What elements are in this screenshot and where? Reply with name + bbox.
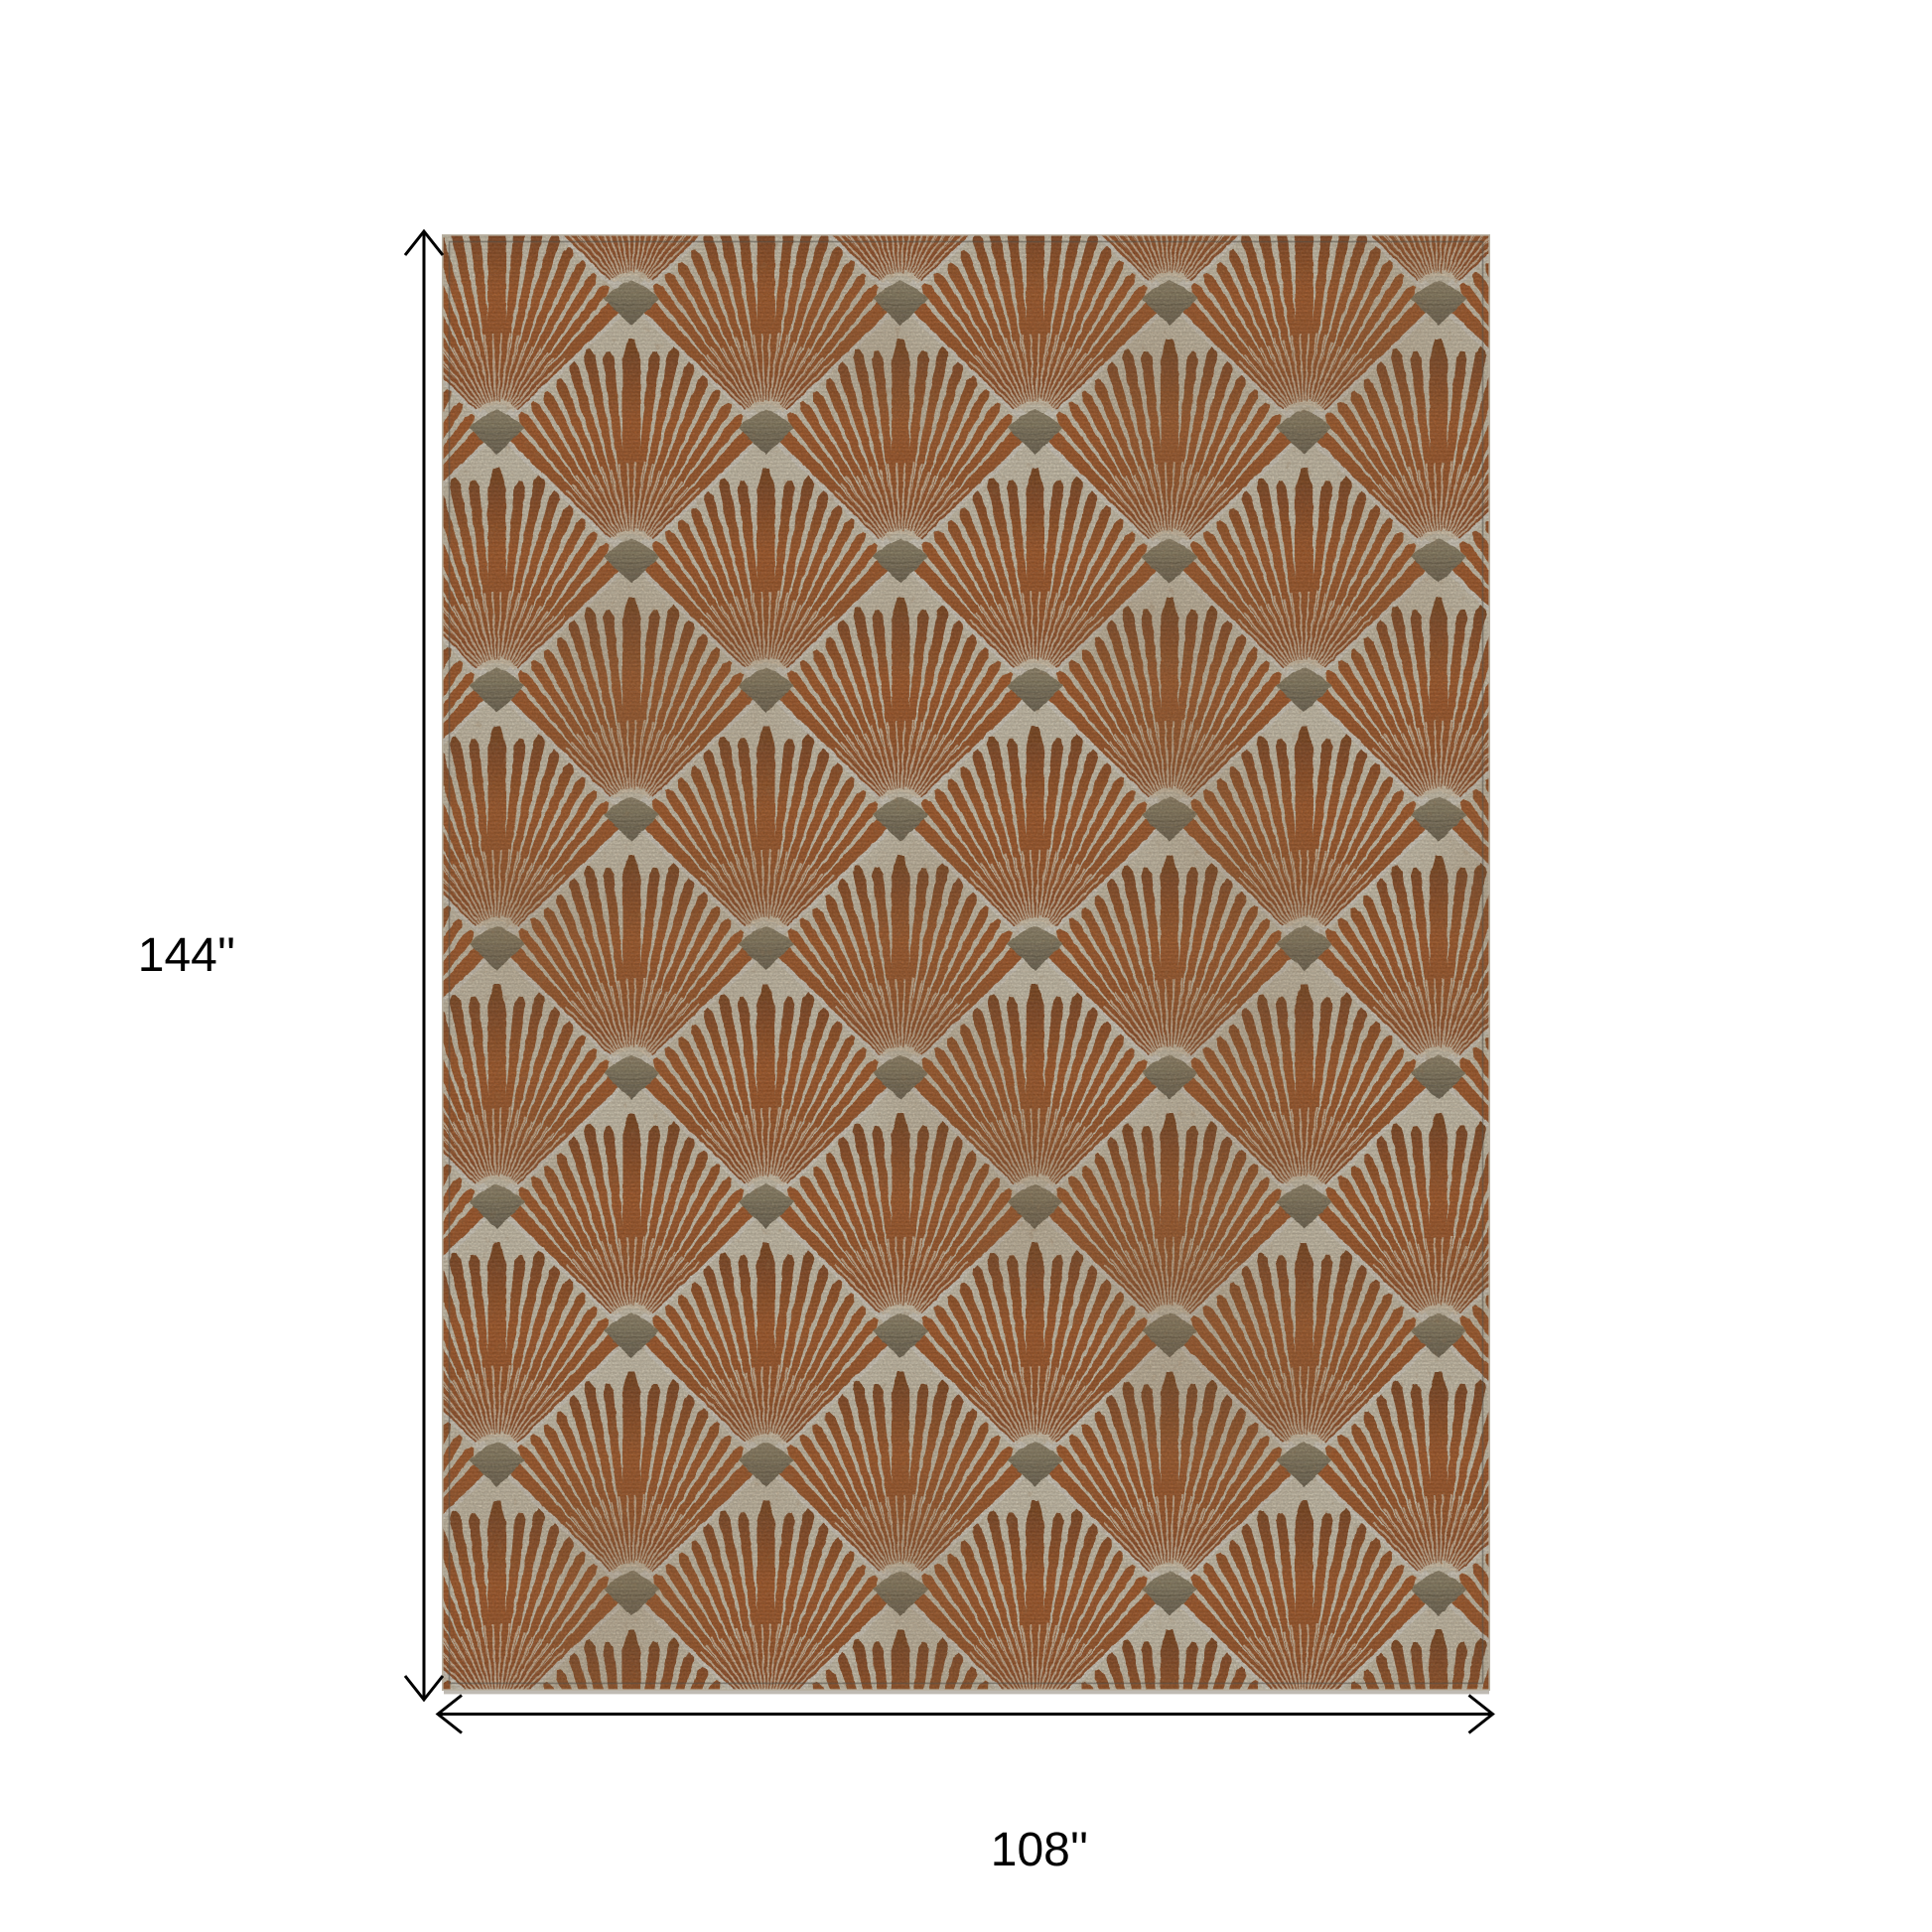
svg-text:144'': 144''	[138, 929, 235, 982]
svg-text:108'': 108''	[991, 1824, 1088, 1876]
